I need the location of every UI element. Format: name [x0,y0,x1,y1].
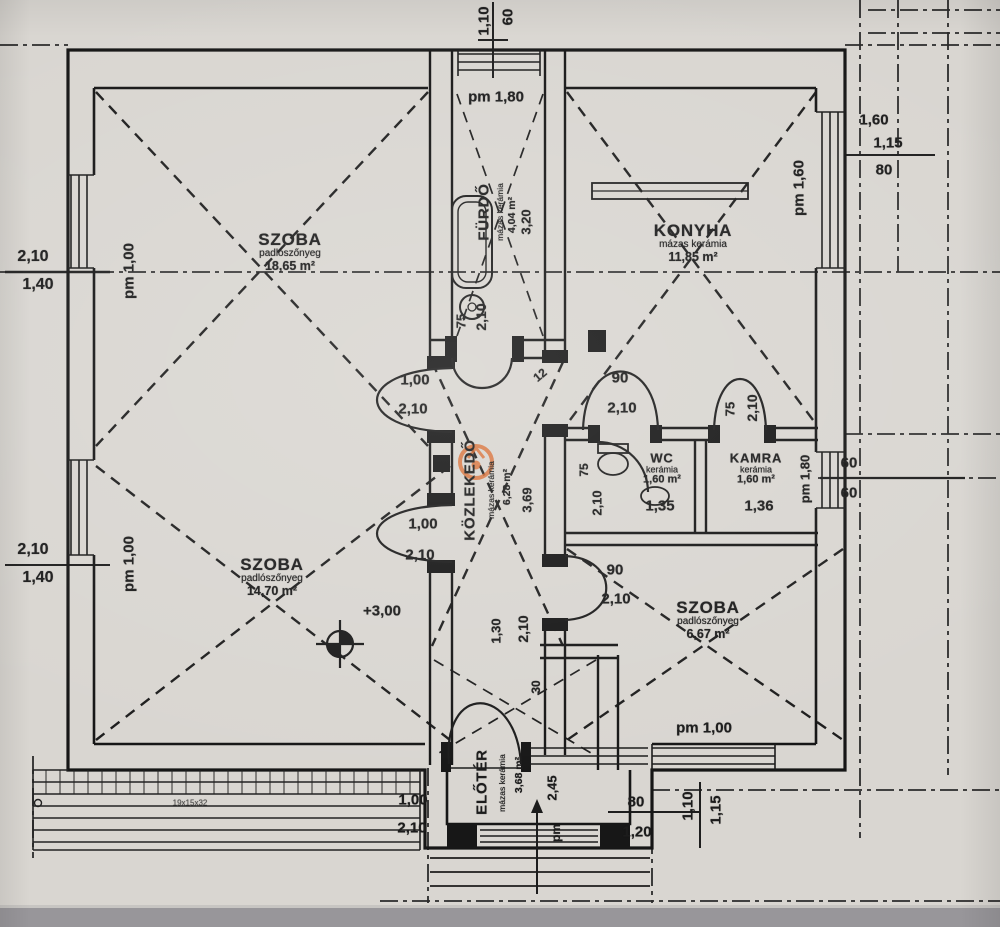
dimension-label: 2,10 [473,303,489,330]
dimension-label: 1,20 [622,824,651,841]
room-floor-eloter: mázas kerámia [497,754,507,812]
dimension-label: 30 [529,680,543,693]
room-name: SZOBA [676,599,740,617]
room-area-furdo: 4,04 m² [506,197,518,233]
dimension-label: 2,10 [17,541,48,559]
room-label-eloter: ELŐTÉR [474,749,491,815]
room-floor-kozlekedo: mázas kerámia [486,461,496,519]
drawing-layer: SZOBA padlószőnyeg 18,65 m² KONYHA mázas… [0,0,1000,927]
dimension-label: 2,10 [515,615,531,642]
room-label-kamra: KAMRA kerámia 1,60 m² [730,452,782,487]
room-name: KAMRA [730,452,782,466]
dimension-label: 80 [876,162,893,179]
room-area: 18,65 m² [258,260,322,273]
dimension-label: pm 1,80 [468,89,524,106]
terrace-steps [33,770,420,850]
dimension-label: 1,40 [22,276,53,294]
dimension-label: pm [549,824,563,842]
room-label-wc: WC kerámia 1,60 m² [643,452,681,487]
room-label-szoba1: SZOBA padlószőnyeg 18,65 m² [258,231,322,273]
dimension-label: 1,35 [645,498,674,515]
dimension-label: 1,36 [744,498,773,515]
dimension-label: 1,00 [408,516,437,533]
room-diagonals [96,92,843,756]
dimension-label: 90 [607,562,624,579]
room-name: WC [643,452,681,466]
room-area: 1,60 m² [730,475,782,487]
room-label-szoba2: SZOBA padlószőnyeg 14,70 m² [240,556,304,598]
photo-bottom-bar [0,908,1000,927]
room-area: 1,60 m² [643,475,681,487]
room-width-furdo: 3,20 [519,209,534,234]
dimension-label: 2,10 [607,400,636,417]
dimension-label: 1,00 [400,372,429,389]
room-label-kozlekedo: KÖZLEKEDŐ [462,439,479,540]
dimension-label: 2,10 [398,401,427,418]
room-area: 14,70 m² [240,585,304,598]
dimension-label: 90 [612,370,629,387]
dimension-label: 60 [841,485,858,502]
dimension-label: 2,10 [590,490,605,515]
dimension-label: 1,10 [680,791,697,820]
dimension-label: pm 1,00 [121,536,138,592]
dimension-label: 1,00 [398,792,427,809]
dimension-label: 2,10 [744,394,760,421]
room-area-kozlekedo: 6,28 m² [501,469,513,505]
dimension-label: 1,15 [873,135,902,152]
dimension-label: 1,15 [708,795,725,824]
dimension-label: 2,10 [601,591,630,608]
dimension-label: 2,10 [397,820,426,837]
room-label-furdo: FÜRDŐ [476,183,493,240]
room-label-konyha: KONYHA mázas kerámia 11,85 m² [654,222,732,264]
room-area-eloter: 3,68 m² [513,757,525,793]
dimension-label: 1,40 [22,569,53,587]
room-name: SZOBA [258,231,322,249]
room-label-szoba3: SZOBA padlószőnyeg 6,67 m² [676,599,740,641]
floorplan-photo: SZOBA padlószőnyeg 18,65 m² KONYHA mázas… [0,0,1000,927]
room-area: 6,67 m² [676,628,740,641]
dimension-label: 19x15x32 [173,799,208,808]
room-name: KONYHA [654,222,732,240]
dimension-label: pm 1,00 [676,720,732,737]
level-value: +3,00 [363,603,401,620]
dimension-label: 60 [500,9,517,26]
dimension-label: 1,30 [489,618,504,643]
level-marker [316,620,364,668]
room-width-kozlekedo: 3,69 [520,487,535,512]
dimension-label: 1,10 [476,6,493,35]
dimension-label: 1,60 [859,112,888,129]
room-width-eloter: 2,45 [545,775,560,800]
dimension-label: pm 1,80 [798,455,813,503]
dimension-label: 60 [841,455,858,472]
dimension-label: 75 [454,314,469,328]
dimension-label: 2,10 [17,248,48,266]
dimension-label: 80 [628,794,645,811]
dimension-label: pm 1,00 [121,243,138,299]
room-name: SZOBA [240,556,304,574]
dimension-label: 75 [723,402,738,416]
dimension-label: 2,10 [405,547,434,564]
dimension-label: 75 [577,463,591,476]
dimension-label: pm 1,60 [791,160,808,216]
room-area: 11,85 m² [654,251,732,264]
dimension-lines [5,2,965,848]
room-floor-furdo: mázas kerámia [495,183,505,241]
